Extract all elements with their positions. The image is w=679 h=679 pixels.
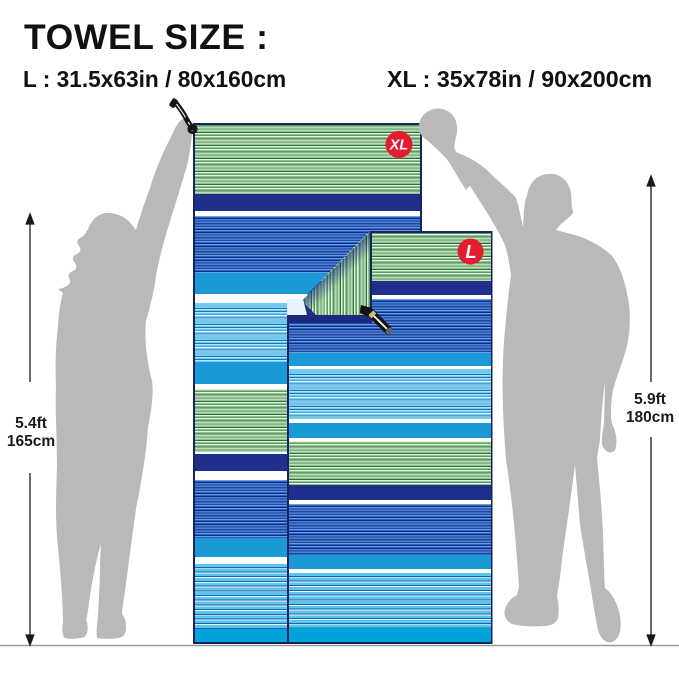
svg-text:L: L: [466, 242, 477, 262]
svg-text:XL: XL: [389, 138, 409, 154]
